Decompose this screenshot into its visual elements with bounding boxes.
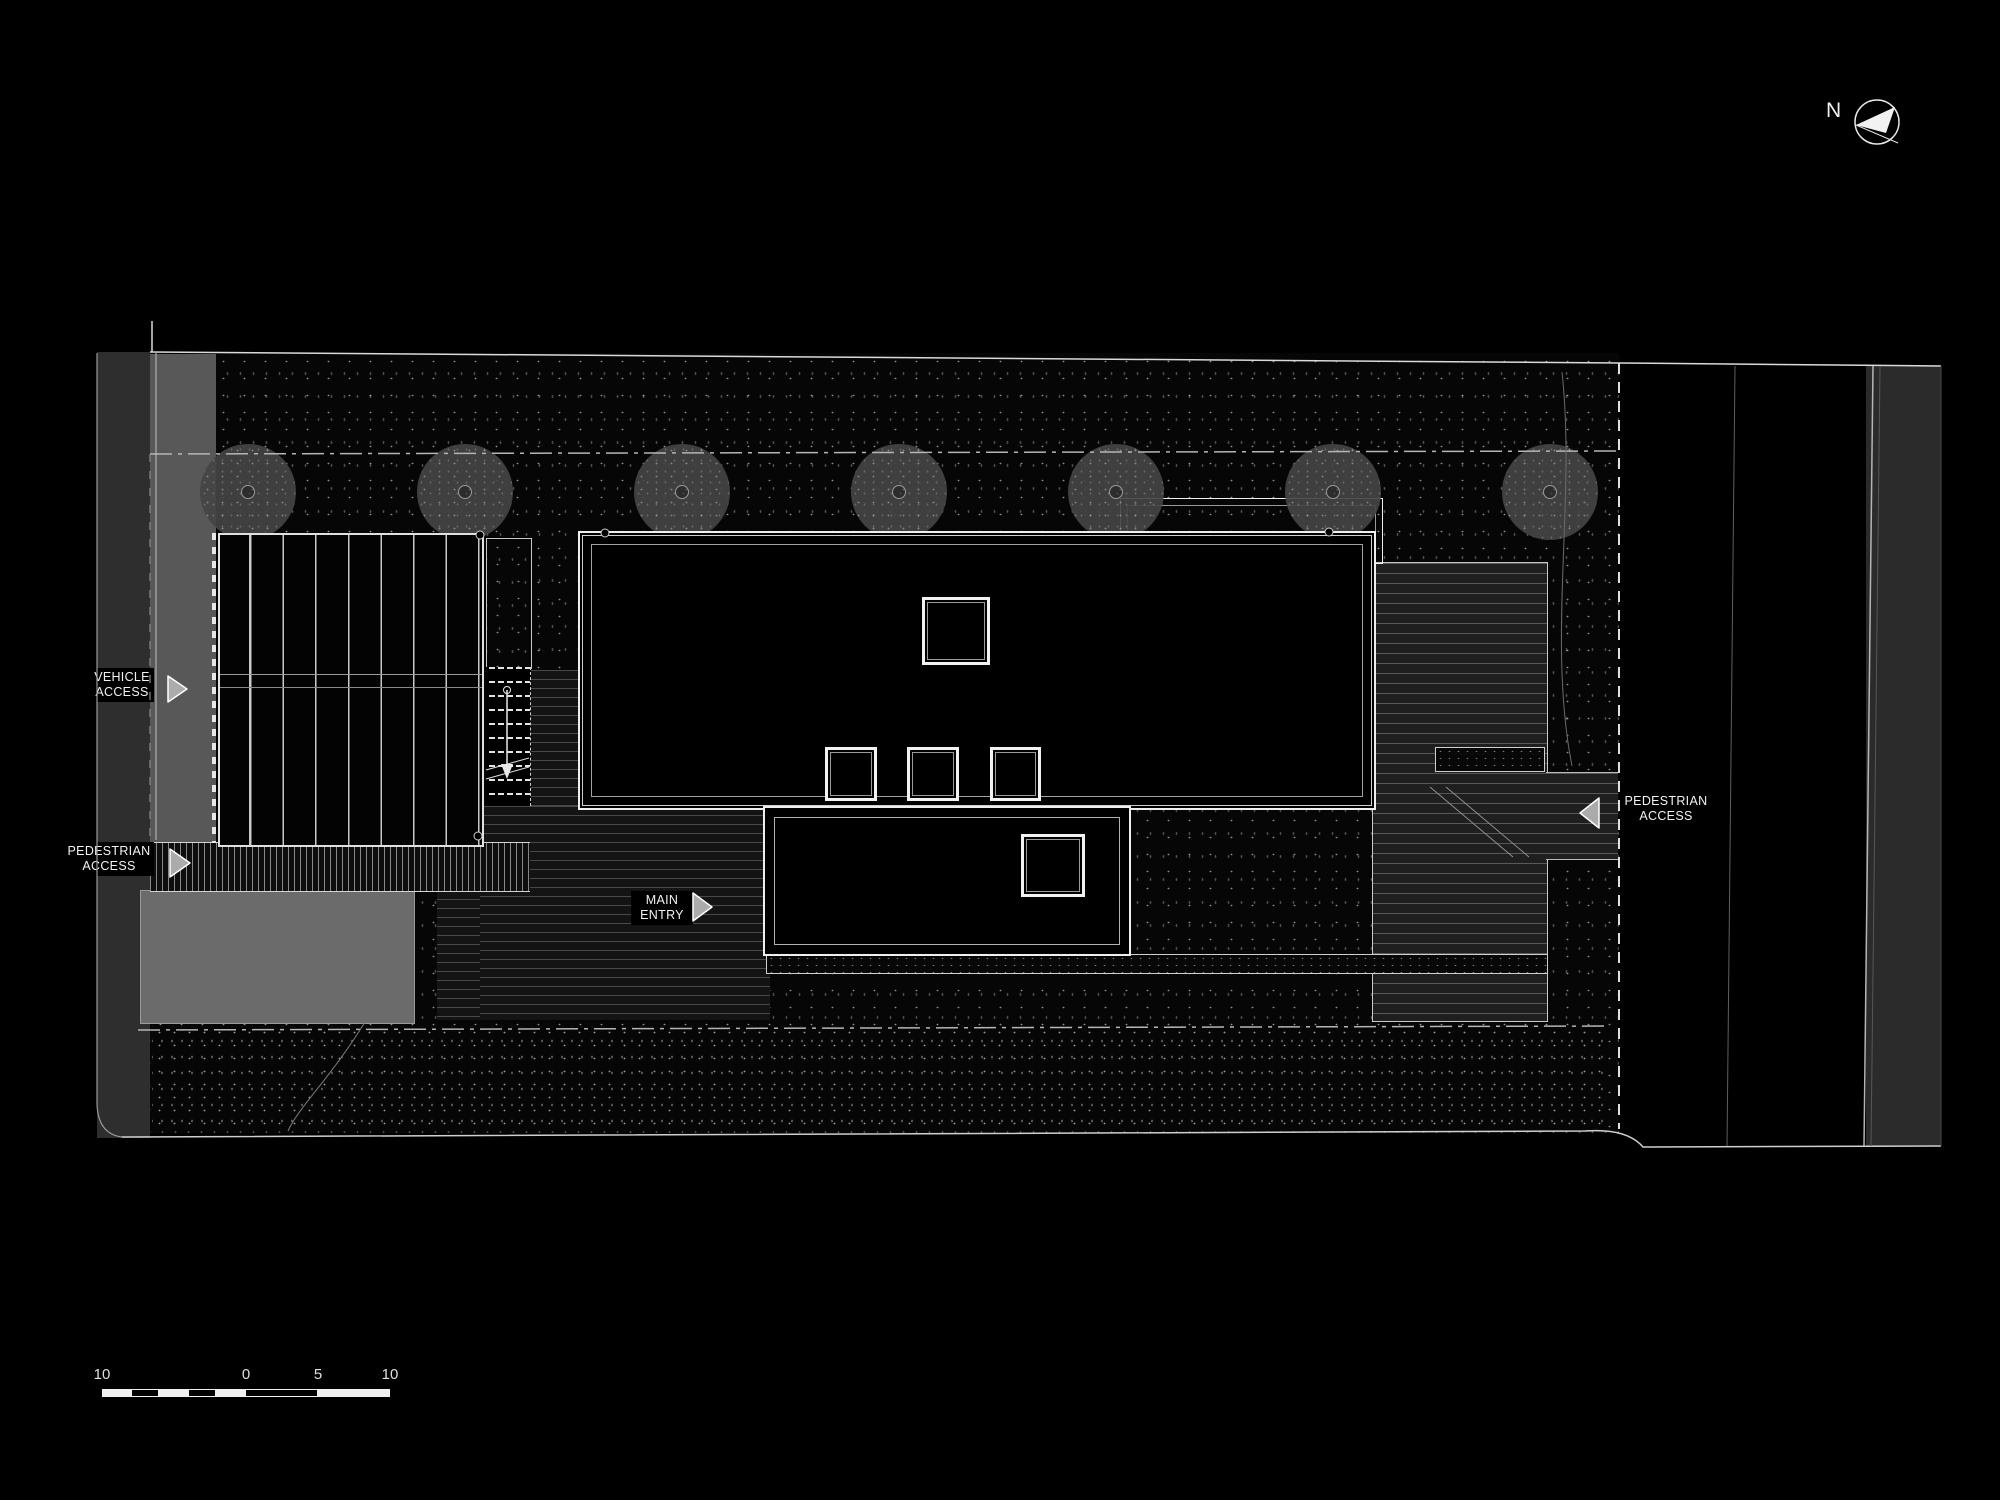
north-arrow-tail-icon bbox=[1856, 125, 1898, 143]
north-arrow-pointer-icon bbox=[1856, 107, 1895, 133]
stair bbox=[486, 667, 531, 806]
stair-planter-box bbox=[486, 538, 532, 669]
site-plan-canvas: VEHICLE ACCESS PEDESTRIAN ACCESS MAIN EN… bbox=[0, 0, 2000, 1500]
vehicle-access-line2: ACCESS bbox=[93, 685, 151, 700]
tree bbox=[200, 444, 296, 540]
road-verge-east bbox=[1866, 366, 1941, 1146]
pedestrian-access-east-line2: ACCESS bbox=[1623, 809, 1709, 824]
pedestrian-access-west-line1: PEDESTRIAN bbox=[67, 844, 151, 859]
pedestrian-access-east-line1: PEDESTRIAN bbox=[1623, 794, 1709, 809]
scale-tick-label: 10 bbox=[374, 1366, 406, 1383]
tree-trunk-icon bbox=[241, 485, 255, 499]
tree bbox=[1502, 444, 1598, 540]
front-planting-bed bbox=[152, 1026, 1608, 1130]
tree bbox=[1068, 444, 1164, 540]
scale-tick-label: 10 bbox=[86, 1366, 118, 1383]
tree-trunk-icon bbox=[1326, 485, 1340, 499]
lower-building bbox=[763, 806, 1131, 956]
deck-south-terrace bbox=[480, 806, 770, 1020]
lawn-pad bbox=[140, 890, 415, 1024]
deck-east-path bbox=[1546, 772, 1618, 860]
tree-trunk-icon bbox=[1543, 485, 1557, 499]
pedestrian-access-west-line2: ACCESS bbox=[67, 859, 151, 874]
north-label: N bbox=[1826, 99, 1841, 123]
skylight-small bbox=[907, 747, 959, 801]
tree-trunk-icon bbox=[1109, 485, 1123, 499]
tree-trunk-icon bbox=[458, 485, 472, 499]
vehicle-access-label: VEHICLE ACCESS bbox=[90, 668, 154, 702]
main-building-inner-line bbox=[591, 544, 1363, 797]
tree bbox=[851, 444, 947, 540]
tree-trunk-icon bbox=[675, 485, 689, 499]
deck-southwest bbox=[437, 890, 480, 1020]
tree bbox=[634, 444, 730, 540]
tree bbox=[417, 444, 513, 540]
skylight-large bbox=[922, 597, 990, 665]
main-entry-label: MAIN ENTRY bbox=[631, 891, 693, 925]
skylight-small bbox=[990, 747, 1041, 801]
planter-bar-east bbox=[1435, 747, 1545, 772]
vehicle-access-line1: VEHICLE bbox=[93, 670, 151, 685]
main-entry-line2: ENTRY bbox=[634, 908, 690, 923]
main-entry-line1: MAIN bbox=[634, 893, 690, 908]
site-boundary-south bbox=[122, 1131, 1941, 1147]
driveway bbox=[150, 354, 216, 842]
tree-trunk-icon bbox=[892, 485, 906, 499]
planter-strip-south bbox=[766, 954, 1548, 974]
deck-east-terrace bbox=[1372, 562, 1548, 1022]
scale-tick-label: 5 bbox=[302, 1366, 334, 1383]
skylight-small bbox=[825, 747, 877, 801]
scale-tick-label: 0 bbox=[230, 1366, 262, 1383]
pedestrian-access-east-label: PEDESTRIAN ACCESS bbox=[1620, 792, 1712, 826]
skylight-lower-building bbox=[1021, 834, 1085, 897]
garage-edge-ticks bbox=[212, 533, 216, 843]
tree bbox=[1285, 444, 1381, 540]
north-arrow-circle-icon bbox=[1855, 100, 1899, 144]
garage-roof bbox=[218, 533, 484, 847]
road-lane-line bbox=[1727, 366, 1735, 1146]
pedestrian-walkway-west bbox=[150, 842, 530, 892]
pedestrian-access-west-label: PEDESTRIAN ACCESS bbox=[64, 842, 154, 876]
main-building bbox=[578, 531, 1376, 810]
scale-bar bbox=[102, 1389, 390, 1397]
